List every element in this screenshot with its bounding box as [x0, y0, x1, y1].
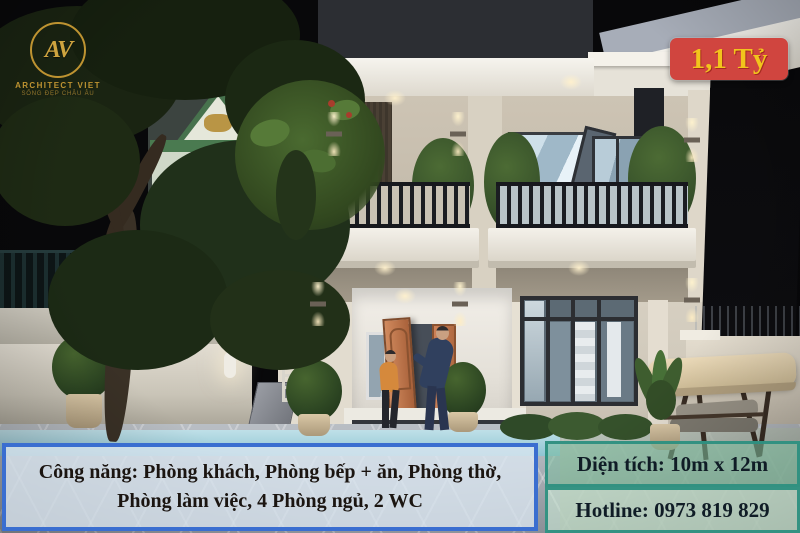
price-badge: 1,1 Tỷ: [670, 38, 788, 80]
logo-ring: AV: [30, 22, 86, 78]
area-label: Diện tích: 10m x 12m: [577, 452, 768, 477]
features-banner: Công năng: Phòng khách, Phòng bếp + ăn, …: [2, 443, 538, 531]
features-line-2: Phòng làm việc, 4 Phòng ngủ, 2 WC: [6, 487, 534, 516]
hotline-banner: Hotline: 0973 819 829: [545, 487, 800, 533]
right-banners: Diện tích: 10m x 12m Hotline: 0973 819 8…: [545, 441, 800, 533]
logo-monogram: AV: [45, 37, 71, 64]
features-line-1: Công năng: Phòng khách, Phòng bếp + ăn, …: [6, 458, 534, 487]
price-label: 1,1 Tỷ: [691, 43, 768, 76]
area-banner: Diện tích: 10m x 12m: [545, 441, 800, 487]
brand-name: ARCHITECT VIET: [6, 81, 110, 90]
brand-tagline: SỐNG ĐẸP CHÂU ÂU: [6, 91, 110, 97]
advert-image: AV ARCHITECT VIET SỐNG ĐẸP CHÂU ÂU 1,1 T…: [0, 0, 800, 533]
brand-watermark: AV ARCHITECT VIET SỐNG ĐẸP CHÂU ÂU: [6, 22, 110, 97]
hotline-label: Hotline: 0973 819 829: [575, 498, 769, 523]
